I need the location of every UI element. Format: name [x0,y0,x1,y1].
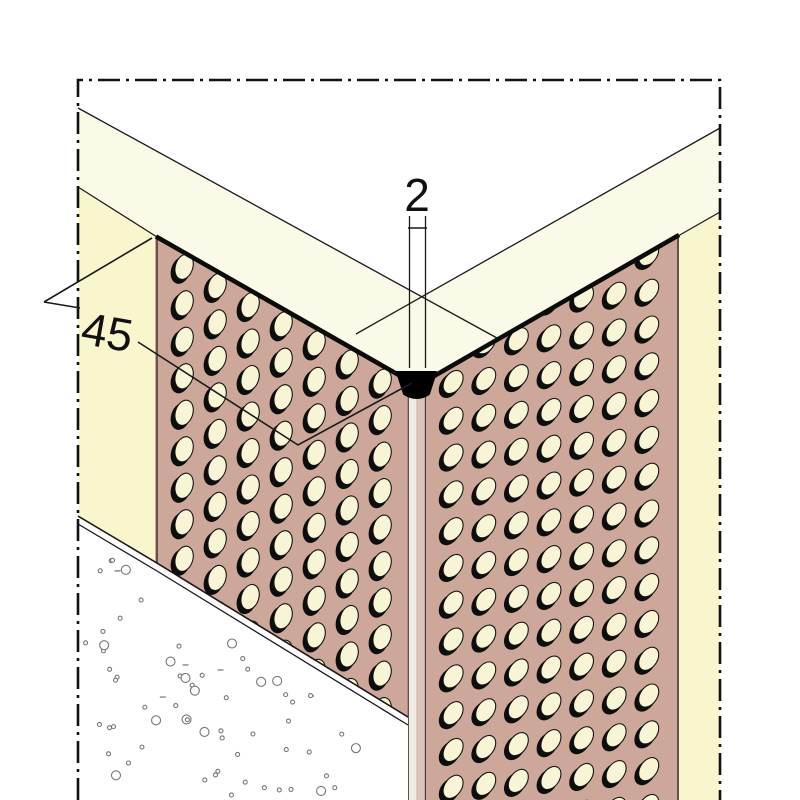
stipple-dot [166,657,175,666]
stipple-dot [140,745,144,749]
stipple-dot [98,569,102,573]
stipple-dot [333,786,337,790]
dim45-label: 45 [78,302,137,362]
stipple-dot [200,727,209,736]
stipple-dot [224,696,228,700]
stipple-dot [307,750,311,754]
stipple-dot [203,778,207,782]
stipple-dot [229,793,233,797]
stipple-dot [177,644,181,648]
stipple-dot [257,677,266,686]
stipple-dot [97,722,101,726]
stipple-dot [284,748,288,752]
technical-drawing-page: 2 45 [0,0,800,800]
stipple-dot [277,788,281,792]
stipple-dot [291,700,295,704]
stipple-dot [289,787,293,791]
stipple-dot [351,744,360,753]
stipple-dot [317,786,326,795]
stipple-dot [190,686,199,695]
stipple-dot [200,673,204,677]
stipple-dot [111,771,120,780]
stipple-dot [111,558,115,562]
stipple-dot [152,716,161,725]
stipple-dot [118,616,122,620]
stipple-dot [114,678,118,682]
stipple-dot [101,629,105,633]
stipple-dot [216,769,220,773]
stipple-dot [181,673,190,682]
stipple-dot [100,641,109,650]
substrate-right-strip [678,211,720,800]
stipple-dot [219,729,223,733]
stipple-dot [340,732,344,736]
stipple-dot [273,676,282,685]
stipple-dot [108,667,112,671]
nose-strip [408,394,425,800]
substrate-left-strip [78,187,157,566]
stipple-dot [284,693,288,697]
stipple-dot [139,598,143,602]
stipple-dot [246,667,250,671]
stipple-dot [112,725,116,729]
stipple-dot [143,705,147,709]
stipple-dot [174,704,178,708]
stipple-dot [309,694,313,698]
stipple-dot [236,752,240,756]
nose-strip-highlight [408,394,417,800]
corner-bead-drawing: 2 45 [0,0,800,800]
stipple-dot [228,639,237,648]
stipple-dot [324,774,328,778]
stipple-dot [108,726,112,730]
stipple-dot [251,732,255,736]
stipple-dot [220,736,224,740]
stipple-dot [84,641,88,645]
stipple-dot [241,657,245,661]
stipple-dot [107,752,111,756]
stipple-dot [121,565,130,574]
stipple-dot [286,719,290,723]
stipple-dot [185,718,189,722]
stipple-dot [243,780,247,784]
stipple-dot [126,761,130,765]
dim2-label: 2 [404,169,430,221]
stipple-dot [262,786,266,790]
nose-strip-shade [417,394,425,800]
